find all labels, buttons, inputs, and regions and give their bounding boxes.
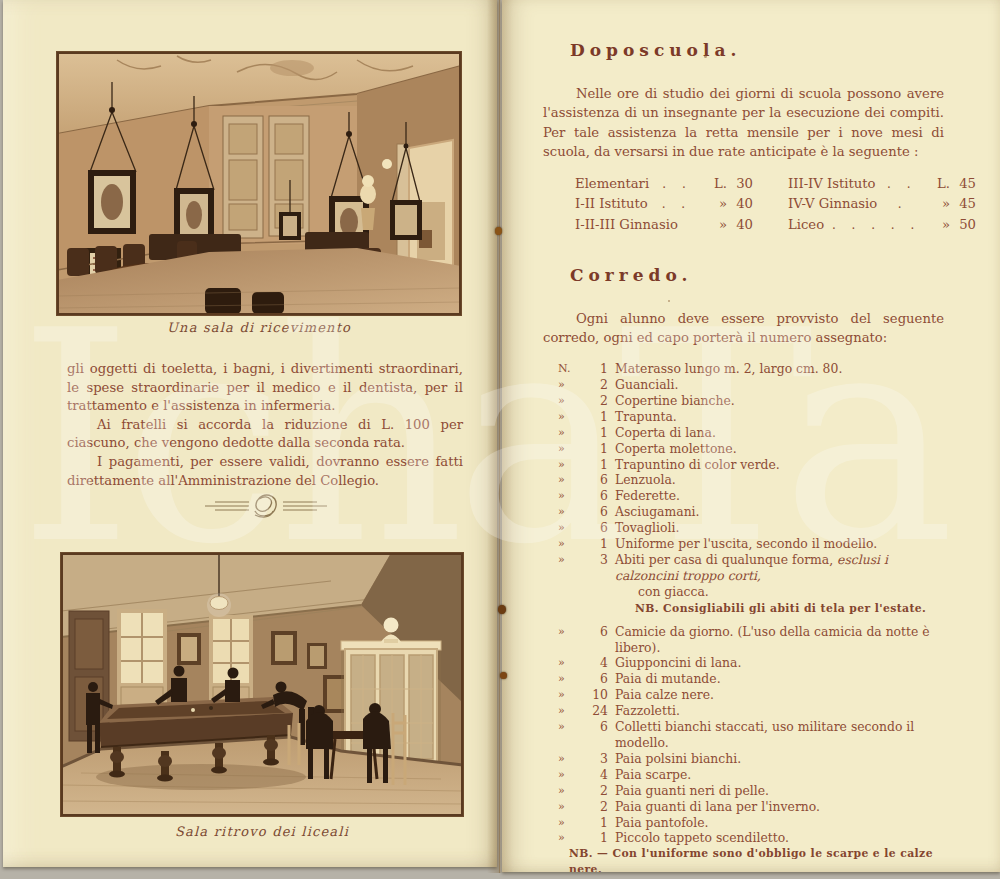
item-text: Copertine bianche. bbox=[615, 393, 944, 409]
item-quantity: 1 bbox=[586, 361, 608, 377]
corredo-item: »2Copertine bianche. bbox=[543, 393, 944, 409]
item-marker: » bbox=[555, 377, 579, 393]
item-text: Giupponcini di lana. bbox=[615, 655, 944, 671]
corredo-item: »3Paia polsini bianchi. bbox=[543, 751, 944, 767]
item-continuation: con giacca. bbox=[543, 584, 944, 600]
fee-amount: 50 bbox=[950, 215, 976, 236]
page-gutter-line bbox=[499, 0, 500, 873]
item-text: Camicie da giorno. (L'uso della camicia … bbox=[615, 624, 944, 656]
item-quantity: 6 bbox=[586, 671, 608, 687]
corredo-item: »2Paia guanti di lana per l'inverno. bbox=[543, 799, 944, 815]
billiards-room-photo bbox=[61, 553, 463, 816]
item-marker: » bbox=[555, 520, 579, 536]
fee-currency: L. bbox=[705, 174, 727, 195]
item-quantity: 3 bbox=[586, 552, 608, 584]
scroll-ornament bbox=[205, 489, 327, 523]
item-text: Paia polsini bianchi. bbox=[615, 751, 944, 767]
item-marker: » bbox=[555, 799, 579, 815]
item-text: Materasso lungo m. 2, largo cm. 80. bbox=[615, 361, 944, 377]
fee-leader-dots: . . bbox=[876, 174, 928, 195]
fee-column-left: Elementari. .L.30I-II Istituto. .»40I-II… bbox=[575, 174, 753, 236]
fee-leader-dots: . . . . . bbox=[824, 215, 928, 236]
item-marker: » bbox=[555, 393, 579, 409]
right-page: Doposcuola. Nelle ore di studio dei gior… bbox=[502, 0, 1000, 872]
item-marker: » bbox=[555, 671, 579, 687]
item-marker: » bbox=[555, 536, 579, 552]
item-text: Paia guanti neri di pelle. bbox=[615, 783, 944, 799]
fee-label: Elementari bbox=[575, 174, 649, 195]
fee-label: I-II-III Ginnasio bbox=[575, 215, 678, 236]
fee-amount: 40 bbox=[727, 215, 753, 236]
item-marker: N. bbox=[555, 361, 579, 377]
left-page: Una sala di ricevimento gli oggetti di t… bbox=[3, 0, 497, 867]
fee-amount: 40 bbox=[727, 194, 753, 215]
corredo-item: »6Lenzuola. bbox=[543, 472, 944, 488]
corredo-item: »6Tovaglioli. bbox=[543, 520, 944, 536]
corredo-item: »24Fazzoletti. bbox=[543, 703, 944, 719]
item-text: Asciugamani. bbox=[615, 504, 944, 520]
fee-row: Elementari. .L.30 bbox=[575, 174, 753, 195]
photo-caption: Una sala di ricevimento bbox=[57, 320, 461, 335]
item-marker: » bbox=[555, 783, 579, 799]
item-quantity: 6 bbox=[586, 504, 608, 520]
fee-leader-dots: . . bbox=[648, 194, 705, 215]
item-text: Uniforme per l'uscita, secondo il modell… bbox=[615, 536, 944, 552]
item-marker: » bbox=[555, 751, 579, 767]
item-marker: » bbox=[555, 830, 579, 846]
item-marker: » bbox=[555, 815, 579, 831]
fee-label: III-IV Istituto bbox=[788, 174, 876, 195]
item-quantity: 6 bbox=[586, 719, 608, 751]
paragraph: gli oggetti di toeletta, i bagni, i dive… bbox=[67, 360, 463, 416]
fee-currency: L. bbox=[928, 174, 950, 195]
corredo-item: »1Coperta di lana. bbox=[543, 425, 944, 441]
item-marker: » bbox=[555, 504, 579, 520]
corredo-item: »1Trapunta. bbox=[543, 409, 944, 425]
fee-label: Liceo bbox=[788, 215, 824, 236]
item-quantity: 1 bbox=[586, 536, 608, 552]
item-quantity: 1 bbox=[586, 425, 608, 441]
corredo-item: »6Colletti bianchi staccati, uso militar… bbox=[543, 719, 944, 751]
item-quantity: 2 bbox=[586, 799, 608, 815]
item-marker: » bbox=[555, 703, 579, 719]
item-marker: » bbox=[555, 624, 579, 656]
item-quantity: 6 bbox=[586, 520, 608, 536]
section-heading-doposcuola: Doposcuola. bbox=[570, 40, 944, 60]
item-text: Abiti per casa di qualunque forma, esclu… bbox=[615, 552, 944, 584]
item-text: Tovaglioli. bbox=[615, 520, 944, 536]
fee-currency: » bbox=[705, 194, 727, 215]
item-text: Paia scarpe. bbox=[615, 767, 944, 783]
fee-table: Elementari. .L.30I-II Istituto. .»40I-II… bbox=[575, 174, 944, 236]
item-text: Paia di mutande. bbox=[615, 671, 944, 687]
corredo-item: »1Piccolo tappeto scendiletto. bbox=[543, 830, 944, 846]
paragraph: Ai fratelli si accorda la riduzione di L… bbox=[67, 416, 463, 453]
item-text: Coperta molettone. bbox=[615, 441, 944, 457]
foxing-speck bbox=[668, 300, 670, 302]
fee-label: I-II Istituto bbox=[575, 194, 648, 215]
item-quantity: 2 bbox=[586, 783, 608, 799]
corredo-item: »10Paia calze nere. bbox=[543, 687, 944, 703]
corredo-item: »1Uniforme per l'uscita, secondo il mode… bbox=[543, 536, 944, 552]
item-quantity: 1 bbox=[586, 441, 608, 457]
item-text: Lenzuola. bbox=[615, 472, 944, 488]
corredo-item: »4Giupponcini di lana. bbox=[543, 655, 944, 671]
section-heading-corredo: Corredo. bbox=[570, 265, 944, 285]
corredo-item: N.1Materasso lungo m. 2, largo cm. 80. bbox=[543, 361, 944, 377]
fee-amount: 30 bbox=[727, 174, 753, 195]
item-quantity: 1 bbox=[586, 815, 608, 831]
binding-staple bbox=[500, 672, 507, 679]
item-marker: » bbox=[555, 687, 579, 703]
corredo-item: »6Camicie da giorno. (L'uso della camici… bbox=[543, 624, 944, 656]
flourish-icon bbox=[205, 489, 327, 523]
corredo-item: »3Abiti per casa di qualunque forma, esc… bbox=[543, 552, 944, 584]
binding-staple bbox=[495, 227, 502, 235]
fee-currency: » bbox=[928, 215, 950, 236]
paragraph: I pagamenti, per essere validi, dovranno… bbox=[67, 453, 463, 490]
billiards-room-illustration bbox=[61, 553, 463, 816]
item-text: Federette. bbox=[615, 488, 944, 504]
reception-room-photo bbox=[57, 52, 461, 315]
fee-currency: » bbox=[928, 194, 950, 215]
corredo-item: »6Federette. bbox=[543, 488, 944, 504]
fee-currency: » bbox=[705, 215, 727, 236]
fee-row: I-II-III Ginnasio»40 bbox=[575, 215, 753, 236]
item-marker: » bbox=[555, 655, 579, 671]
item-quantity: 1 bbox=[586, 457, 608, 473]
item-text: Paia guanti di lana per l'inverno. bbox=[615, 799, 944, 815]
item-marker: » bbox=[555, 425, 579, 441]
item-text: Paia pantofole. bbox=[615, 815, 944, 831]
doposcuola-paragraph: Nelle ore di studio dei giorni di scuola… bbox=[543, 84, 944, 162]
item-quantity: 2 bbox=[586, 377, 608, 393]
item-text-italic: esclusi i calzoncini troppo corti, bbox=[615, 552, 888, 583]
corredo-paragraph: Ogni alunno deve essere provvisto del se… bbox=[543, 309, 944, 347]
fee-leader-dots: . . bbox=[649, 174, 705, 195]
item-marker: » bbox=[555, 767, 579, 783]
item-quantity: 6 bbox=[586, 472, 608, 488]
item-quantity: 1 bbox=[586, 830, 608, 846]
item-quantity: 6 bbox=[586, 624, 608, 656]
item-marker: » bbox=[555, 472, 579, 488]
item-text: Trapunta. bbox=[615, 409, 944, 425]
fee-amount: 45 bbox=[950, 174, 976, 195]
fee-row: I-II Istituto. .»40 bbox=[575, 194, 753, 215]
item-text: Paia calze nere. bbox=[615, 687, 944, 703]
item-marker: » bbox=[555, 409, 579, 425]
corredo-item: »1Trapuntino di color verde. bbox=[543, 457, 944, 473]
scanned-booklet-spread: Una sala di ricevimento gli oggetti di t… bbox=[0, 0, 1000, 879]
item-quantity: 3 bbox=[586, 751, 608, 767]
left-page-body: gli oggetti di toeletta, i bagni, i dive… bbox=[67, 360, 463, 490]
nb-note: NB. — Con l'uniforme sono d'obbligo le s… bbox=[569, 846, 944, 872]
nb-note: NB. Consigliabili gli abiti di tela per … bbox=[635, 601, 944, 617]
corredo-item: »2Guanciali. bbox=[543, 377, 944, 393]
item-text: Trapuntino di color verde. bbox=[615, 457, 944, 473]
corredo-item: »2Paia guanti neri di pelle. bbox=[543, 783, 944, 799]
foxing-speck bbox=[704, 55, 707, 58]
fee-row: IV-V Ginnasio.»45 bbox=[788, 194, 976, 215]
item-text: Fazzoletti. bbox=[615, 703, 944, 719]
fee-label: IV-V Ginnasio bbox=[788, 194, 877, 215]
item-marker: » bbox=[555, 719, 579, 751]
item-text: Piccolo tappeto scendiletto. bbox=[615, 830, 944, 846]
item-quantity: 6 bbox=[586, 488, 608, 504]
corredo-item: »6Paia di mutande. bbox=[543, 671, 944, 687]
right-page-body: Doposcuola. Nelle ore di studio dei gior… bbox=[543, 40, 944, 872]
item-quantity: 4 bbox=[586, 655, 608, 671]
item-text: Colletti bianchi staccati, uso militare … bbox=[615, 719, 944, 751]
item-quantity: 4 bbox=[586, 767, 608, 783]
fee-amount: 45 bbox=[950, 194, 976, 215]
item-text: Coperta di lana. bbox=[615, 425, 944, 441]
corredo-item: »1Coperta molettone. bbox=[543, 441, 944, 457]
item-quantity: 1 bbox=[586, 409, 608, 425]
item-marker: » bbox=[555, 457, 579, 473]
fee-leader-dots: . bbox=[877, 194, 928, 215]
item-quantity: 24 bbox=[586, 703, 608, 719]
corredo-item: »1Paia pantofole. bbox=[543, 815, 944, 831]
photo-caption: Sala ritrovo dei liceali bbox=[61, 824, 463, 839]
fee-column-right: III-IV Istituto. .L.45IV-V Ginnasio.»45L… bbox=[788, 174, 976, 236]
corredo-item: »6Asciugamani. bbox=[543, 504, 944, 520]
reception-room-illustration bbox=[57, 52, 461, 315]
corredo-item: »4Paia scarpe. bbox=[543, 767, 944, 783]
corredo-list: N.1Materasso lungo m. 2, largo cm. 80.»2… bbox=[543, 361, 944, 872]
item-marker: » bbox=[555, 441, 579, 457]
item-text: Guanciali. bbox=[615, 377, 944, 393]
binding-staple bbox=[498, 605, 506, 614]
fee-row: Liceo. . . . .»50 bbox=[788, 215, 976, 236]
item-marker: » bbox=[555, 552, 579, 584]
item-quantity: 2 bbox=[586, 393, 608, 409]
item-quantity: 10 bbox=[586, 687, 608, 703]
fee-row: III-IV Istituto. .L.45 bbox=[788, 174, 976, 195]
item-marker: » bbox=[555, 488, 579, 504]
